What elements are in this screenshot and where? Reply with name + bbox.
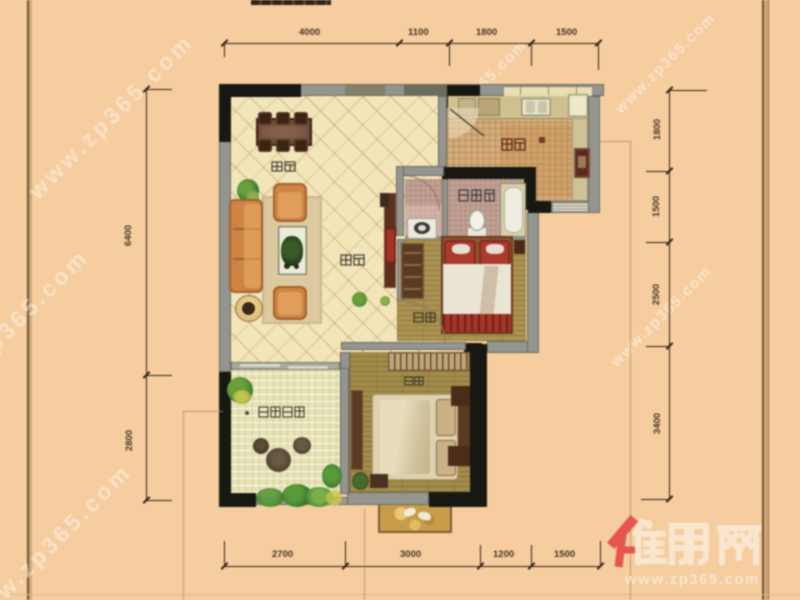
svg-text:www.zp365.com: www.zp365.com (624, 571, 760, 588)
